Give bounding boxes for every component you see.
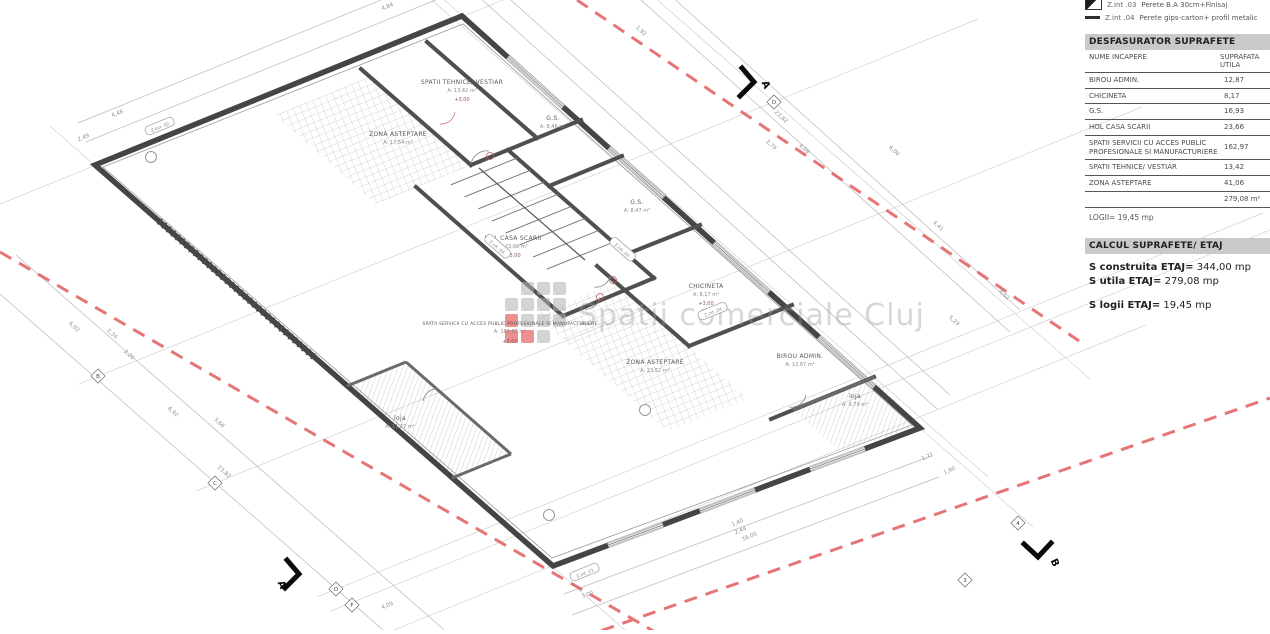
table-total-row: 279,08 m² — [1085, 192, 1270, 208]
legend-label: Perete B.A 30cm+Finisaj — [1142, 1, 1228, 9]
logii-note: LOGII= 19,45 mp — [1085, 208, 1270, 222]
svg-text:SPATII TEHNICE/ VESTIAR: SPATII TEHNICE/ VESTIAR — [421, 79, 503, 86]
room-label-birou-admin: BIROU ADMIN. A: 12,87 m² — [777, 353, 824, 368]
table-row: SPATII TEHNICE/ VESTIAR 13,42 — [1085, 160, 1270, 176]
svg-text:2,26: 2,26 — [122, 349, 135, 362]
svg-text:A: 12,87 m²: A: 12,87 m² — [785, 362, 814, 368]
svg-text:1,92: 1,92 — [634, 25, 647, 38]
svg-text:B: B — [1048, 557, 1061, 569]
svg-text:A: 13,42 m²: A: 13,42 m² — [447, 88, 476, 94]
svg-text:loja: loja — [849, 393, 861, 400]
svg-text:A: 17,54 m²: A: 17,54 m² — [383, 140, 412, 146]
table-row: HOL CASA SCARII 23,66 — [1085, 120, 1270, 136]
svg-text:3,66: 3,66 — [212, 417, 225, 430]
svg-text:A: 8,46 m²: A: 8,46 m² — [540, 124, 566, 130]
svg-text:BIROU ADMIN.: BIROU ADMIN. — [777, 353, 824, 360]
svg-text:D: D — [772, 100, 776, 106]
svg-text:3: 3 — [963, 578, 967, 584]
svg-text:G.S.: G.S. — [546, 115, 559, 122]
svg-text:A: 23,52 m²: A: 23,52 m² — [640, 368, 669, 374]
svg-text:SPATII SERVICII CU ACCES PUBLI: SPATII SERVICII CU ACCES PUBLIC PROFESIO… — [422, 321, 597, 327]
svg-text:A: 162,97 m²: A: 162,97 m² — [494, 329, 527, 335]
svg-text:A: 8,17 m²: A: 8,17 m² — [693, 292, 719, 298]
svg-text:2,49: 2,49 — [77, 133, 91, 143]
svg-text:4,41: 4,41 — [931, 220, 944, 233]
svg-text:4,46: 4,46 — [111, 109, 125, 119]
svg-text:4: 4 — [1016, 521, 1020, 527]
svg-text:ZONA ASTEPTARE: ZONA ASTEPTARE — [369, 131, 427, 138]
grid-bubbles: D B C D F 4 3 — [91, 95, 1025, 612]
section-marker-a-bottom: A — [275, 560, 299, 591]
svg-text:23,82: 23,82 — [773, 110, 789, 125]
svg-text:6,92: 6,92 — [166, 406, 179, 419]
legend-item-zint03: Z.int .03 Perete B.A 30cm+Finisaj — [1085, 0, 1270, 11]
area-table-header: NUME INCAPERE SUPRAFATA UTILA — [1085, 50, 1270, 73]
room-label-gs-1: G.S. A: 8,46 m² — [540, 115, 566, 130]
svg-text:ZONA ASTEPTARE: ZONA ASTEPTARE — [626, 359, 684, 366]
legend-code: Z.int .03 — [1107, 1, 1137, 9]
total-area: 279,08 m² — [1224, 195, 1266, 204]
legend-label: Perete gips-carton+ profil metalic — [1140, 14, 1258, 22]
svg-text:1,71: 1,71 — [921, 452, 935, 462]
svg-text:4,09: 4,09 — [381, 601, 395, 611]
svg-text:A: A — [759, 79, 772, 91]
staircase — [451, 158, 613, 269]
wall-line-icon — [1085, 16, 1100, 19]
floor-plan-drawing: Spatii comerciale Cluj SPATII TEHNICE/ V… — [0, 0, 1270, 630]
legend-code: Z.int .04 — [1105, 14, 1135, 22]
svg-text:G.S.: G.S. — [630, 199, 643, 206]
svg-text:3,00: 3,00 — [581, 590, 595, 600]
col-header-name: NUME INCAPERE — [1089, 53, 1220, 70]
svg-text:2,79: 2,79 — [764, 139, 777, 152]
table-row: CHICINETA 8,17 — [1085, 89, 1270, 105]
svg-text:+3,00: +3,00 — [698, 301, 713, 307]
col-header-area: SUPRAFATA UTILA — [1220, 53, 1266, 70]
watermark-text: Spatii comerciale Cluj — [578, 298, 925, 333]
svg-text:D: D — [334, 587, 338, 593]
svg-text:A: 8,47 m²: A: 8,47 m² — [624, 208, 650, 214]
svg-text:6,02: 6,02 — [67, 321, 80, 334]
table-row: BIROU ADMIN. 12,87 — [1085, 73, 1270, 89]
wall-section-icon — [1085, 0, 1102, 10]
section-marker-b: B — [1024, 543, 1061, 569]
table-row: SPATII SERVICII CU ACCES PUBLIC PROFESIO… — [1085, 136, 1270, 161]
svg-text:B: B — [96, 374, 100, 380]
svg-text:1,90: 1,90 — [943, 466, 957, 476]
table-row: ZONA ASTEPTARE 41,06 — [1085, 176, 1270, 192]
svg-text:+3,00: +3,00 — [502, 339, 517, 345]
svg-text:loja: loja — [394, 415, 406, 422]
svg-text:F: F — [350, 603, 353, 609]
calc-row-logii: S logii ETAJ= 19,45 mp — [1085, 299, 1270, 313]
svg-text:5,29: 5,29 — [947, 315, 960, 328]
svg-text:A: 11,27 m²: A: 11,27 m² — [385, 424, 414, 430]
svg-text:A: 9,79 m²: A: 9,79 m² — [842, 402, 868, 408]
svg-text:23,82: 23,82 — [216, 465, 232, 480]
floor-plan-sheet: Spatii comerciale Cluj SPATII TEHNICE/ V… — [0, 0, 1270, 630]
legend-item-zint04: Z.int .04 Perete gips-carton+ profil met… — [1085, 11, 1270, 24]
calc-row-utila: S utila ETAJ= 279,08 mp — [1085, 275, 1270, 289]
calc-row-construita: S construita ETAJ= 344,00 mp — [1085, 261, 1270, 275]
svg-text:4,84: 4,84 — [381, 2, 395, 12]
calc-title: CALCUL SUPRAFETE/ ETAJ — [1085, 238, 1270, 254]
table-row: G.S. 16,93 — [1085, 104, 1270, 120]
wall-legend: Z.int .03 Perete B.A 30cm+Finisaj Z.int … — [1085, 0, 1270, 24]
svg-text:C: C — [213, 481, 217, 487]
info-panel: Z.int .03 Perete B.A 30cm+Finisaj Z.int … — [1085, 0, 1270, 313]
svg-text:6,00: 6,00 — [887, 145, 900, 158]
svg-text:CHICINETA: CHICINETA — [689, 283, 724, 290]
room-label-gs-2: G.S. A: 8,47 m² — [624, 199, 650, 214]
area-table-title: DESFASURATOR SUPRAFETE — [1085, 34, 1270, 50]
svg-text:+3,00: +3,00 — [454, 97, 469, 103]
